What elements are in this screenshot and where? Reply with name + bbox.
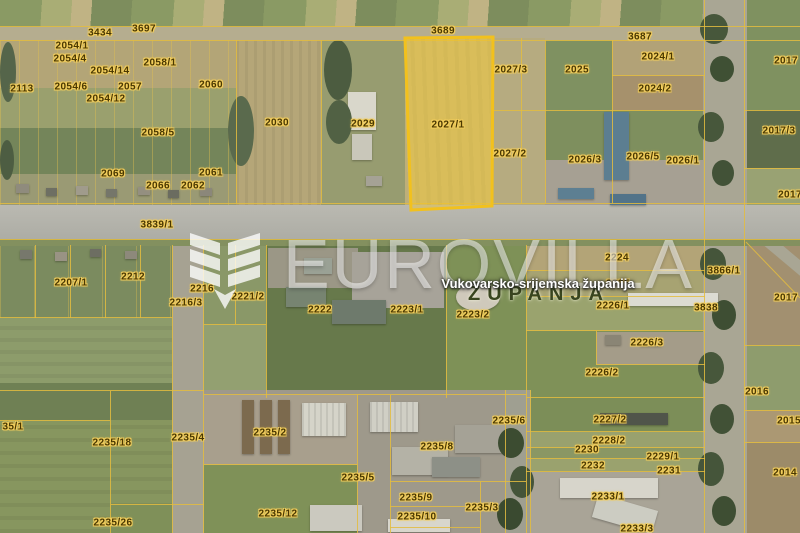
parcel-label: 2058/5 [142,128,175,139]
parcel-label: 2027/2 [494,149,527,160]
parcel-label: 2026/5 [627,152,660,163]
parcel-label: 2233/1 [592,492,625,503]
parcel-label: 3697 [132,24,156,35]
parcel-label: 3689 [431,26,455,37]
parcel-label: 2069 [101,169,125,180]
parcel-label: 2024/1 [642,52,675,63]
parcel-label: 2054/1 [56,41,89,52]
parcel-label: 2054/14 [91,66,130,77]
parcel-label: 2227/2 [594,415,627,426]
parcel-label: 2235/2 [254,428,287,439]
parcel-label: 2016 [745,387,769,398]
parcel-label: 2226/3 [631,338,664,349]
parcel-label: 2212 [121,272,145,283]
parcel-label: 2027/1 [432,120,465,131]
parcel-label: 2029 [351,119,375,130]
parcel-label: 2017 [778,190,800,201]
parcel-label: 2066 [146,181,170,192]
parcel-label: 2235/3 [466,503,499,514]
parcel-label: 2235/10 [398,512,437,523]
parcel-label: 2057 [118,82,142,93]
parcel-label: 2017 [774,293,798,304]
parcel-label: 2030 [265,118,289,129]
parcel-label: 2058/1 [144,58,177,69]
parcel-label: 2222 [308,305,332,316]
parcel-label: 2027/3 [495,65,528,76]
parcel-label: 2015 [777,416,800,427]
parcel-label: 2235/12 [259,509,298,520]
parcel-label: 2235/9 [400,493,433,504]
parcel-label: 2230 [575,445,599,456]
parcel-label: 2060 [199,80,223,91]
parcel-label: 2054/6 [55,82,88,93]
parcel-label: 3839/1 [141,220,174,231]
parcel-label: 2025 [565,65,589,76]
parcel-label: 3687 [628,32,652,43]
eurovilla-logo-icon [186,229,264,309]
parcel-label: 2207/1 [55,278,88,289]
parcel-label: 2026/1 [667,156,700,167]
parcel-label: 2062 [181,181,205,192]
county-label: Vukovarsko-srijemska županija [393,276,683,291]
parcel-label: 2229/1 [647,452,680,463]
parcel-label: 2231 [657,466,681,477]
parcel-label: 2233/3 [621,524,654,533]
parcel-label: 2226/2 [586,368,619,379]
parcel-label: 2235/18 [93,438,132,449]
parcel-label: 2017 [774,56,798,67]
parcel-label: 3434 [88,28,112,39]
parcel-label: 3866/1 [708,266,741,277]
satellite-map: 343436972054/12054/42054/142058/12113205… [0,0,800,533]
parcel-label: 2235/4 [172,433,205,444]
parcel-label: 2235/26 [94,518,133,529]
parcel-label: 2017/3 [763,126,796,137]
parcel-label: 2235/6 [493,416,526,427]
parcel-label: 2223/1 [391,305,424,316]
parcel-label: 2054/12 [87,94,126,105]
parcel-label: 2113 [10,84,33,95]
parcel-label: 2054/4 [54,54,87,65]
parcel-label: 2014 [773,468,797,479]
parcel-label: 2223/2 [457,310,490,321]
parcel-label: 2232 [581,461,605,472]
parcel-label: 2235/8 [421,442,454,453]
parcel-label: 3838 [694,303,718,314]
parcel-label: 35/1 [2,422,23,433]
parcel-label: 2061 [199,168,223,179]
parcel-label: 2235/5 [342,473,375,484]
parcel-label: 2024/2 [639,84,672,95]
parcel-label: 2026/3 [569,155,602,166]
